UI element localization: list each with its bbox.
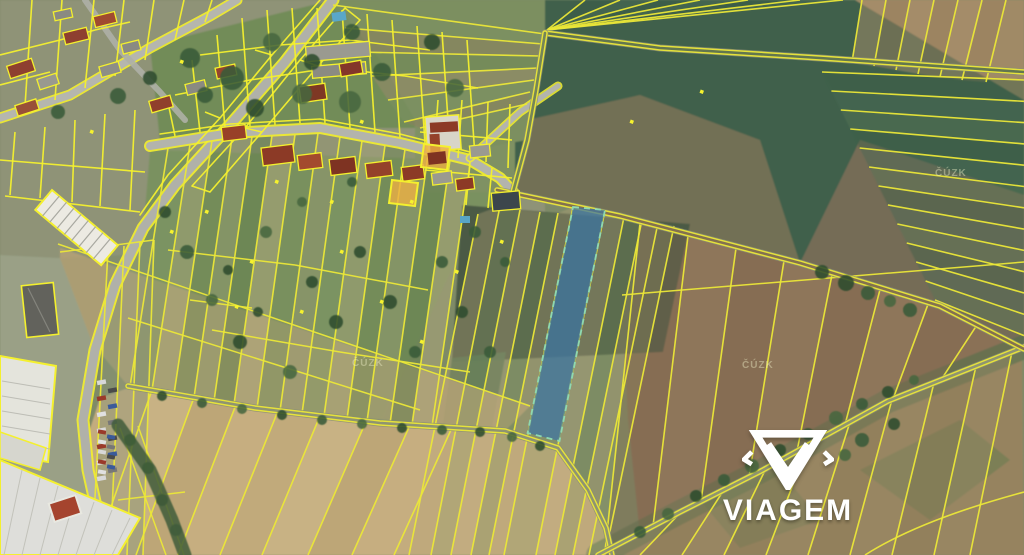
cuzk-watermark: ČÚZK: [935, 168, 967, 179]
orthophoto-canvas: [0, 0, 1024, 555]
cuzk-watermark: ČÚZK: [742, 360, 774, 371]
cuzk-watermark: ČÚZK: [352, 358, 384, 369]
cadastral-map: ČÚZK ČÚZK ČÚZK VIAGEM: [0, 0, 1024, 555]
